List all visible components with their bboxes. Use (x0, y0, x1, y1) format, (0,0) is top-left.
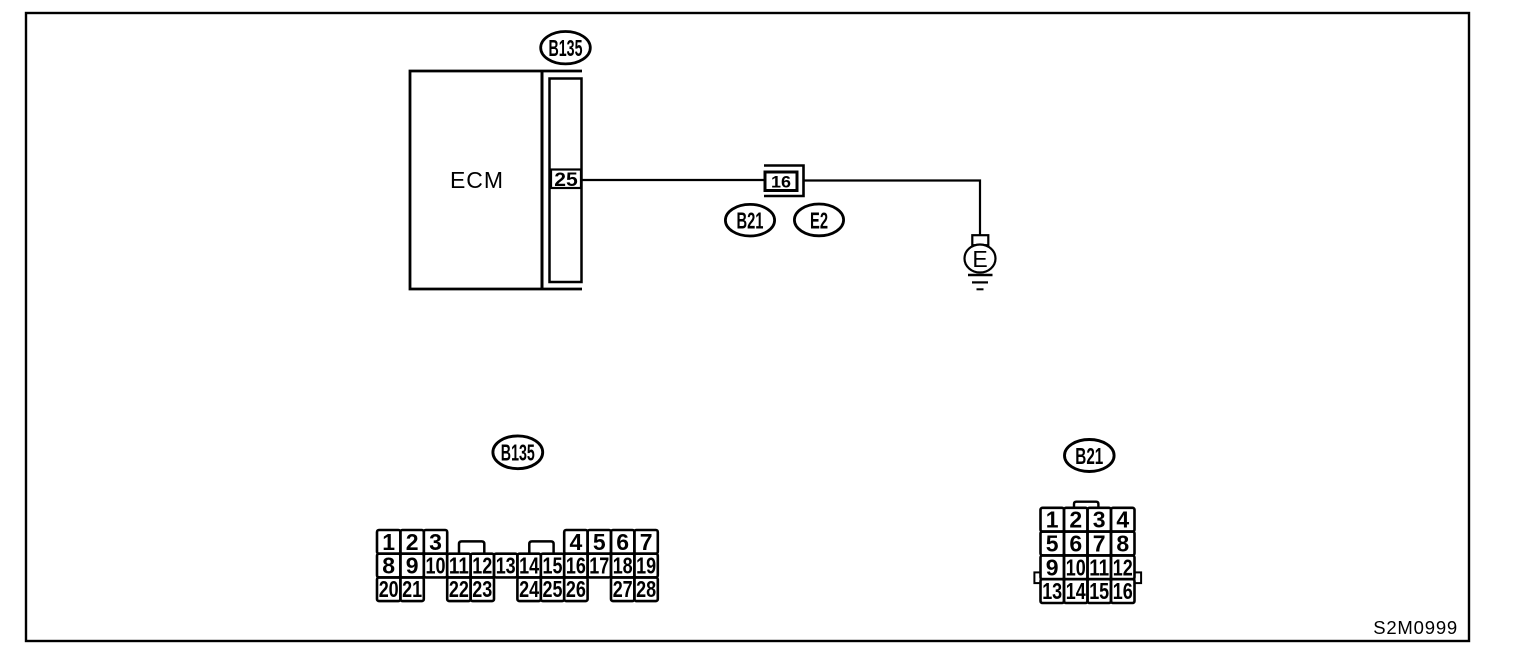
svg-text:1: 1 (382, 529, 395, 555)
svg-text:7: 7 (1093, 531, 1106, 557)
svg-text:25: 25 (543, 576, 563, 602)
svg-text:7: 7 (640, 529, 653, 555)
svg-text:16: 16 (1113, 578, 1133, 604)
svg-text:B21: B21 (737, 208, 764, 234)
svg-text:3: 3 (429, 529, 442, 555)
svg-text:5: 5 (593, 529, 606, 555)
svg-text:4: 4 (1116, 507, 1129, 533)
svg-text:23: 23 (472, 576, 492, 602)
svg-text:27: 27 (613, 576, 633, 602)
svg-text:S2M0999: S2M0999 (1373, 617, 1458, 638)
svg-text:9: 9 (406, 553, 419, 579)
svg-text:13: 13 (496, 553, 516, 579)
svg-text:3: 3 (1093, 507, 1106, 533)
svg-text:E: E (972, 246, 987, 272)
svg-text:11: 11 (449, 553, 469, 579)
svg-text:ECM: ECM (450, 167, 504, 193)
svg-text:15: 15 (1089, 578, 1109, 604)
svg-text:26: 26 (566, 576, 586, 602)
svg-text:28: 28 (636, 576, 656, 602)
svg-text:B135: B135 (501, 440, 535, 466)
svg-text:10: 10 (426, 553, 446, 579)
svg-text:16: 16 (566, 553, 586, 579)
svg-text:25: 25 (554, 169, 578, 191)
svg-text:12: 12 (472, 553, 492, 579)
svg-text:6: 6 (1069, 531, 1082, 557)
svg-text:E2: E2 (810, 207, 828, 233)
svg-text:2: 2 (1069, 507, 1082, 533)
svg-text:B135: B135 (549, 35, 583, 61)
svg-text:19: 19 (636, 553, 656, 579)
svg-text:20: 20 (379, 576, 399, 602)
svg-text:14: 14 (1066, 578, 1086, 604)
svg-text:5: 5 (1046, 531, 1059, 557)
svg-text:22: 22 (449, 576, 469, 602)
svg-text:15: 15 (543, 553, 563, 579)
svg-text:12: 12 (1113, 554, 1133, 580)
svg-text:9: 9 (1046, 554, 1059, 580)
svg-text:11: 11 (1089, 554, 1109, 580)
svg-text:16: 16 (771, 172, 791, 191)
svg-text:8: 8 (382, 553, 395, 579)
svg-text:18: 18 (613, 553, 633, 579)
svg-text:1: 1 (1046, 507, 1059, 533)
svg-text:21: 21 (402, 576, 422, 602)
svg-text:B21: B21 (1075, 443, 1103, 469)
svg-text:17: 17 (589, 553, 609, 579)
svg-text:13: 13 (1042, 578, 1062, 604)
svg-text:24: 24 (519, 576, 539, 602)
svg-text:4: 4 (570, 529, 583, 555)
svg-text:8: 8 (1116, 531, 1129, 557)
svg-text:14: 14 (519, 553, 539, 579)
svg-text:10: 10 (1066, 554, 1086, 580)
svg-text:2: 2 (406, 529, 419, 555)
svg-text:6: 6 (616, 529, 629, 555)
